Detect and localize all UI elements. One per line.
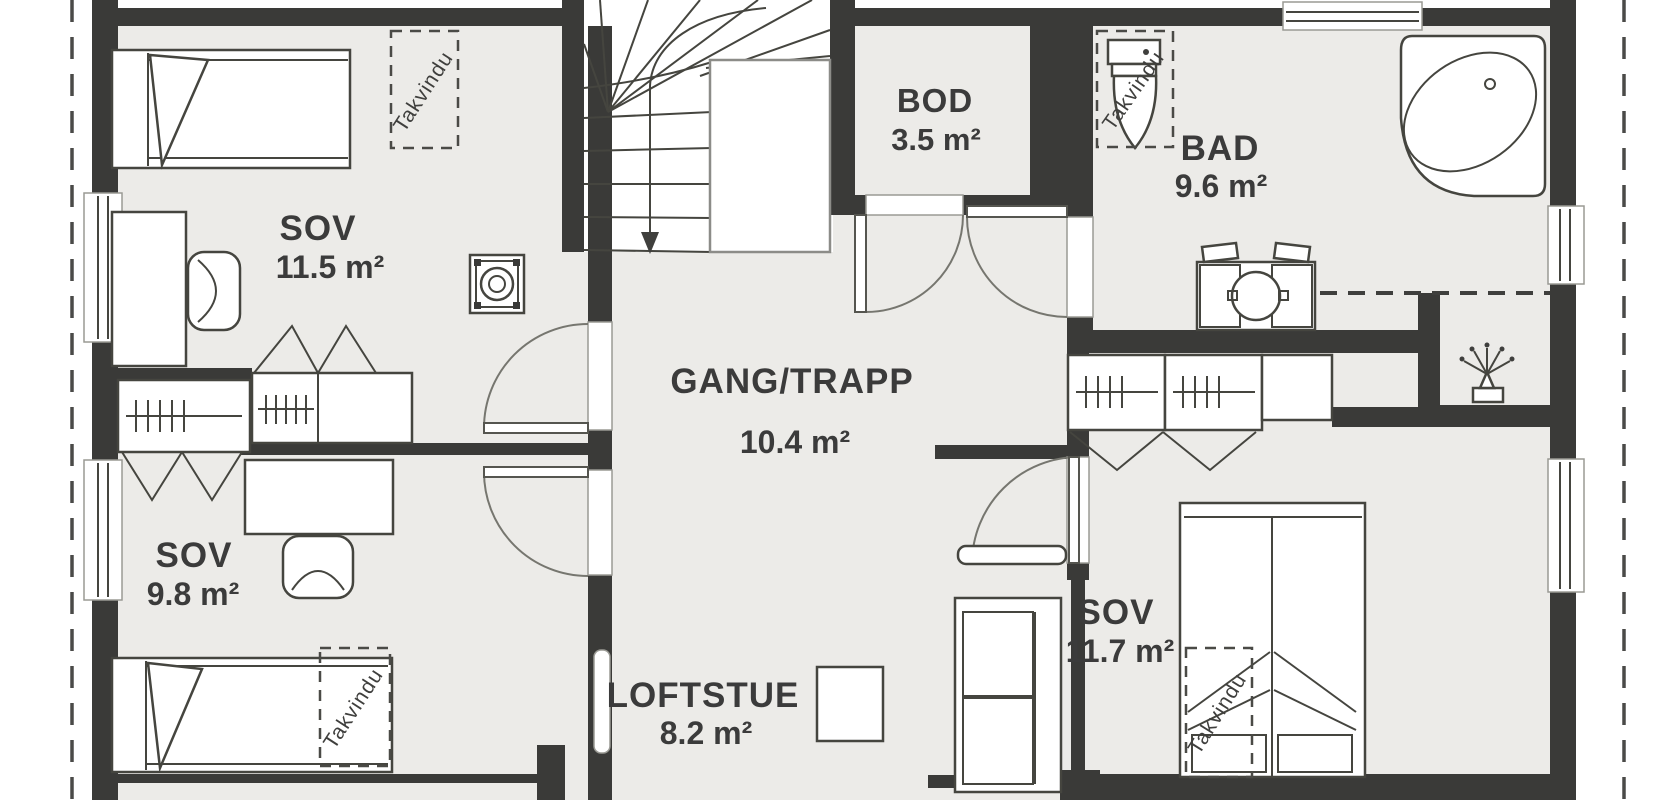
room-area-gang: 10.4 m²	[740, 424, 850, 460]
window-top-bath	[1283, 2, 1422, 30]
room-area-sov-9-8: 9.8 m²	[147, 576, 239, 612]
window-right-bedroom	[1548, 459, 1584, 592]
room-label-bad: BAD	[1181, 129, 1260, 168]
stair-void	[710, 60, 830, 252]
room-label-loftstue: LOFTSTUE	[607, 676, 800, 715]
floorplan-canvas: Takvindu SOV 11.5 m²	[0, 0, 1670, 800]
room-area-loftstue: 8.2 m²	[660, 715, 752, 751]
chimney-icon	[470, 255, 524, 313]
window-left-lower	[84, 460, 122, 600]
room-label-sov-9-8: SOV	[156, 536, 233, 575]
room-area-sov-11-7: 11.7 m²	[1066, 633, 1175, 669]
room-label-sov-11-7: SOV	[1078, 593, 1155, 632]
bed-icon	[112, 50, 350, 168]
room-area-bad: 9.6 m²	[1175, 168, 1267, 204]
room-area-bod: 3.5 m²	[891, 122, 981, 157]
room-label-sov-11-5: SOV	[280, 209, 357, 248]
room-label-bod: BOD	[897, 82, 973, 119]
floorplan-svg: Takvindu SOV 11.5 m²	[0, 0, 1670, 800]
room-area-sov-11-5: 11.5 m²	[276, 249, 385, 285]
table-icon	[817, 667, 883, 741]
window-right-bath	[1548, 206, 1584, 284]
room-label-gang: GANG/TRAPP	[670, 362, 913, 401]
